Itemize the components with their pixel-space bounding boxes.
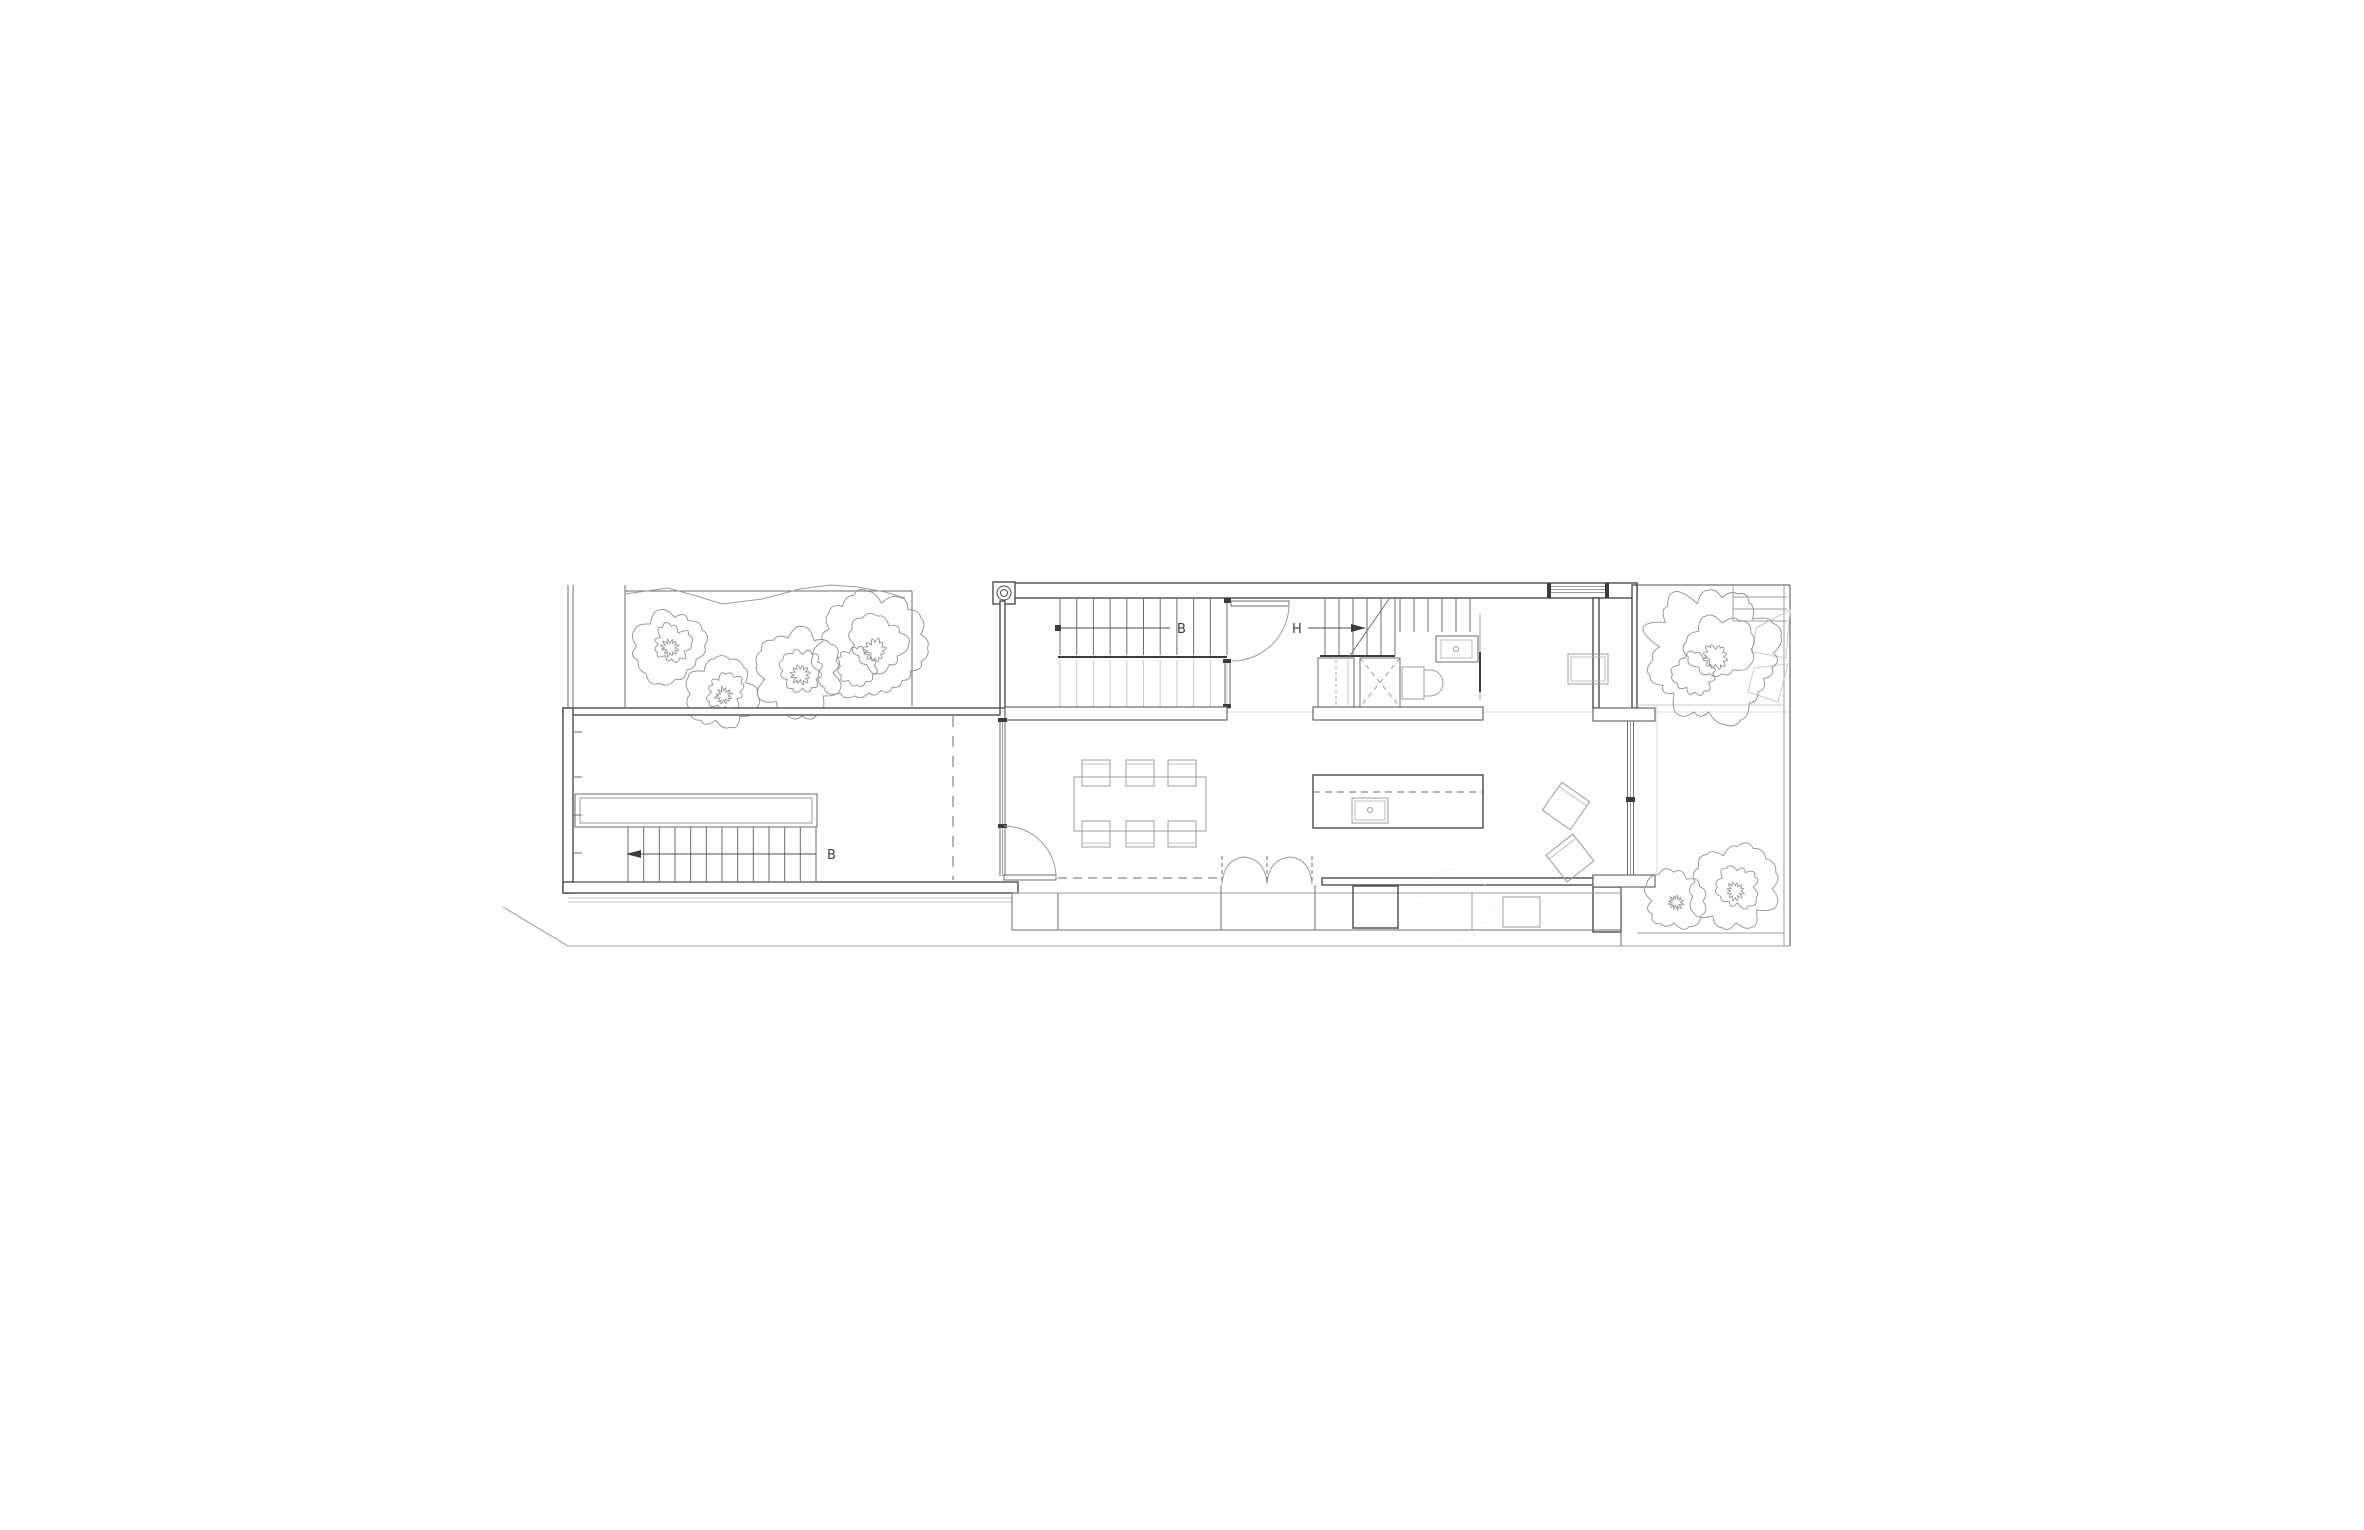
shaft — [1360, 658, 1400, 707]
court-south-wall — [563, 882, 1018, 893]
tree — [1643, 590, 1782, 726]
southeast-corner-wall — [1593, 887, 1621, 932]
front-garden-steps — [568, 585, 625, 707]
lightwell — [1353, 886, 1398, 928]
landing-slab-west — [1005, 707, 1227, 720]
dining-table — [1074, 777, 1206, 831]
glazing-mullion — [1626, 797, 1635, 802]
stair-label-h: H — [1292, 622, 1302, 637]
bathroom-sink — [1436, 636, 1478, 662]
west-wall-ticks — [573, 732, 582, 853]
door-leaf — [1231, 601, 1289, 606]
window-jamb — [1547, 583, 1551, 598]
west-glazing — [998, 718, 1007, 876]
landing-slab-east — [1313, 707, 1483, 720]
island-sink — [1352, 798, 1388, 823]
court-west-wall — [563, 708, 573, 893]
dining-set — [1074, 760, 1206, 847]
planter — [575, 794, 817, 827]
lounge-chair — [1542, 782, 1589, 829]
tree — [686, 656, 760, 729]
east-wall-upper — [1593, 598, 1599, 708]
door-jamb — [1224, 598, 1231, 603]
lounge-chair — [1546, 834, 1594, 882]
stair-b-lower: B — [575, 827, 836, 882]
main-house-north: B H — [993, 582, 1637, 720]
north-wall — [994, 583, 1637, 598]
east-bay-wall-bottom — [1593, 875, 1655, 887]
west-wall-upper — [1000, 601, 1005, 708]
lightwell — [1503, 897, 1540, 927]
stair-label-b-upper: B — [1177, 622, 1186, 637]
hedge-line — [625, 585, 905, 604]
door-leaf — [1004, 875, 1056, 880]
stair-label-b-lower: B — [827, 848, 836, 863]
shrub — [1689, 843, 1778, 930]
tree — [811, 589, 928, 698]
window-seat — [1568, 654, 1608, 684]
door-swing-arc — [1004, 826, 1056, 878]
stair-b-upper: B — [1055, 598, 1227, 708]
east-bay-wall-top — [1593, 708, 1655, 721]
front-garden — [568, 585, 928, 728]
stair-arrow-icon — [1351, 624, 1366, 632]
cooktop — [1399, 800, 1445, 820]
stair-h: H — [1292, 598, 1470, 657]
closet — [1318, 658, 1354, 707]
south-wall — [1322, 878, 1593, 885]
floor-plan-drawing: B B — [0, 0, 2364, 1530]
rear-garden — [1637, 585, 1790, 946]
sunken-court: B — [563, 708, 1018, 902]
hall-door — [1223, 598, 1289, 708]
tree — [756, 626, 841, 719]
window-jamb — [1605, 583, 1609, 598]
living-area — [998, 585, 1655, 932]
door-swing-arc — [1232, 604, 1289, 661]
east-wall-outer — [1632, 585, 1637, 708]
wc-toilet — [1402, 667, 1443, 699]
dining-chair — [1082, 760, 1196, 847]
west-entry-door — [1004, 826, 1056, 880]
kitchen-island — [1313, 775, 1483, 828]
floor-plan-page: B B — [0, 0, 2364, 1530]
court-north-wall — [563, 708, 1000, 715]
tree — [632, 609, 707, 685]
east-glazing — [1626, 721, 1635, 875]
bifold-doors — [1222, 856, 1312, 884]
stair-start-marker — [1055, 625, 1061, 631]
